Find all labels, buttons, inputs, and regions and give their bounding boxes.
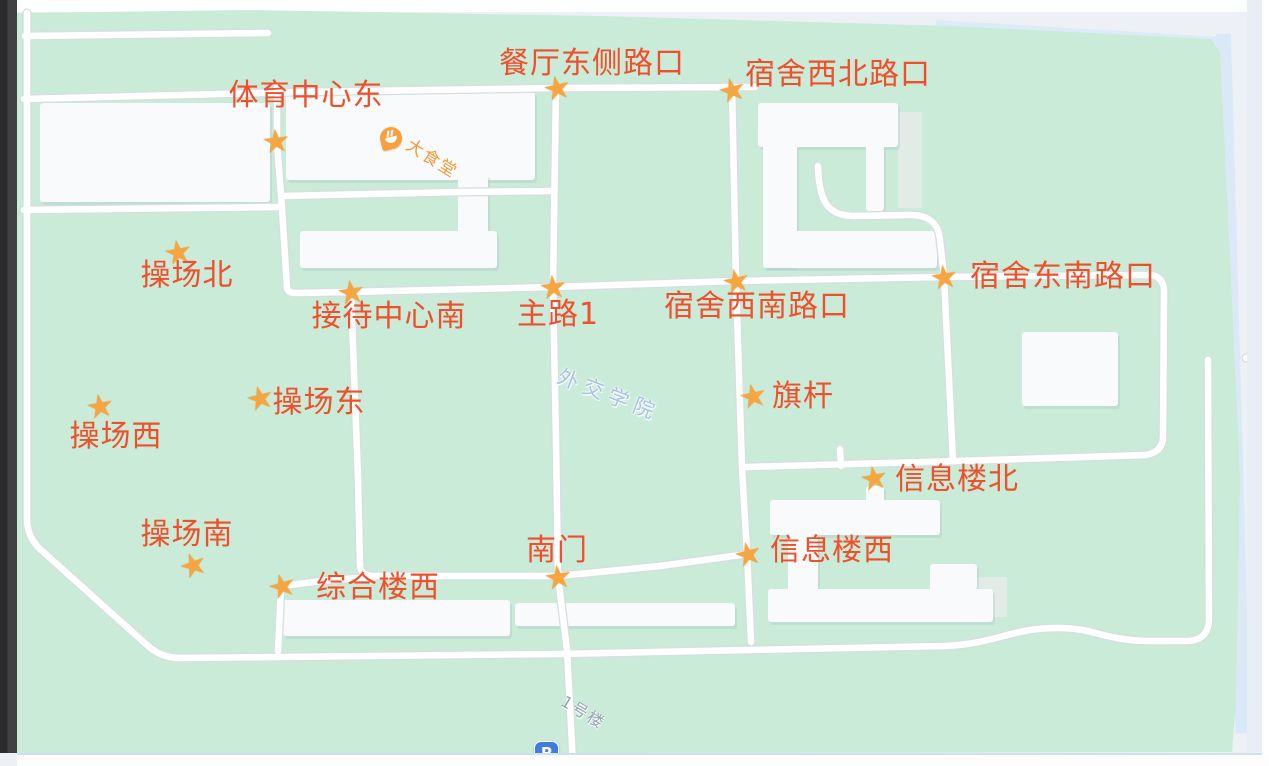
marker-label: 操场西 bbox=[70, 422, 163, 452]
marker-label: 旗杆 bbox=[772, 382, 834, 412]
screen-edge-bottom bbox=[17, 755, 1269, 766]
marker-label: 信息楼西 bbox=[770, 536, 894, 566]
marker-label: 操场北 bbox=[141, 261, 234, 291]
star-marker[interactable]: ★ bbox=[857, 460, 891, 496]
road-network bbox=[0, 0, 1269, 766]
star-marker[interactable]: ★ bbox=[736, 377, 771, 414]
marker-label: 宿舍东南路口 bbox=[970, 262, 1156, 292]
marker-label: 接待中心南 bbox=[312, 302, 467, 332]
screen-edge-right bbox=[1262, 0, 1269, 766]
marker-label: 宿舍西南路口 bbox=[664, 292, 850, 322]
map-outside-right-band bbox=[1247, 0, 1262, 766]
marker-label: 体育中心东 bbox=[229, 81, 384, 111]
star-marker[interactable]: ★ bbox=[928, 259, 961, 295]
map-viewport[interactable]: 大食堂 外交学院 1号楼 P ★体育中心东★餐厅东侧路口★宿舍西北路口★操场北★… bbox=[0, 0, 1269, 766]
star-marker[interactable]: ★ bbox=[260, 124, 292, 159]
marker-label: 南门 bbox=[526, 536, 588, 566]
marker-label: 信息楼北 bbox=[895, 465, 1019, 495]
marker-label: 主路1 bbox=[517, 300, 599, 330]
marker-label: 餐厅东侧路口 bbox=[499, 49, 685, 79]
marker-label: 综合楼西 bbox=[316, 573, 440, 603]
screen-edge-left-dark-bar bbox=[0, 0, 17, 753]
marker-label: 宿舍西北路口 bbox=[745, 60, 931, 90]
marker-label: 操场东 bbox=[273, 388, 366, 418]
marker-label: 操场南 bbox=[141, 520, 234, 550]
